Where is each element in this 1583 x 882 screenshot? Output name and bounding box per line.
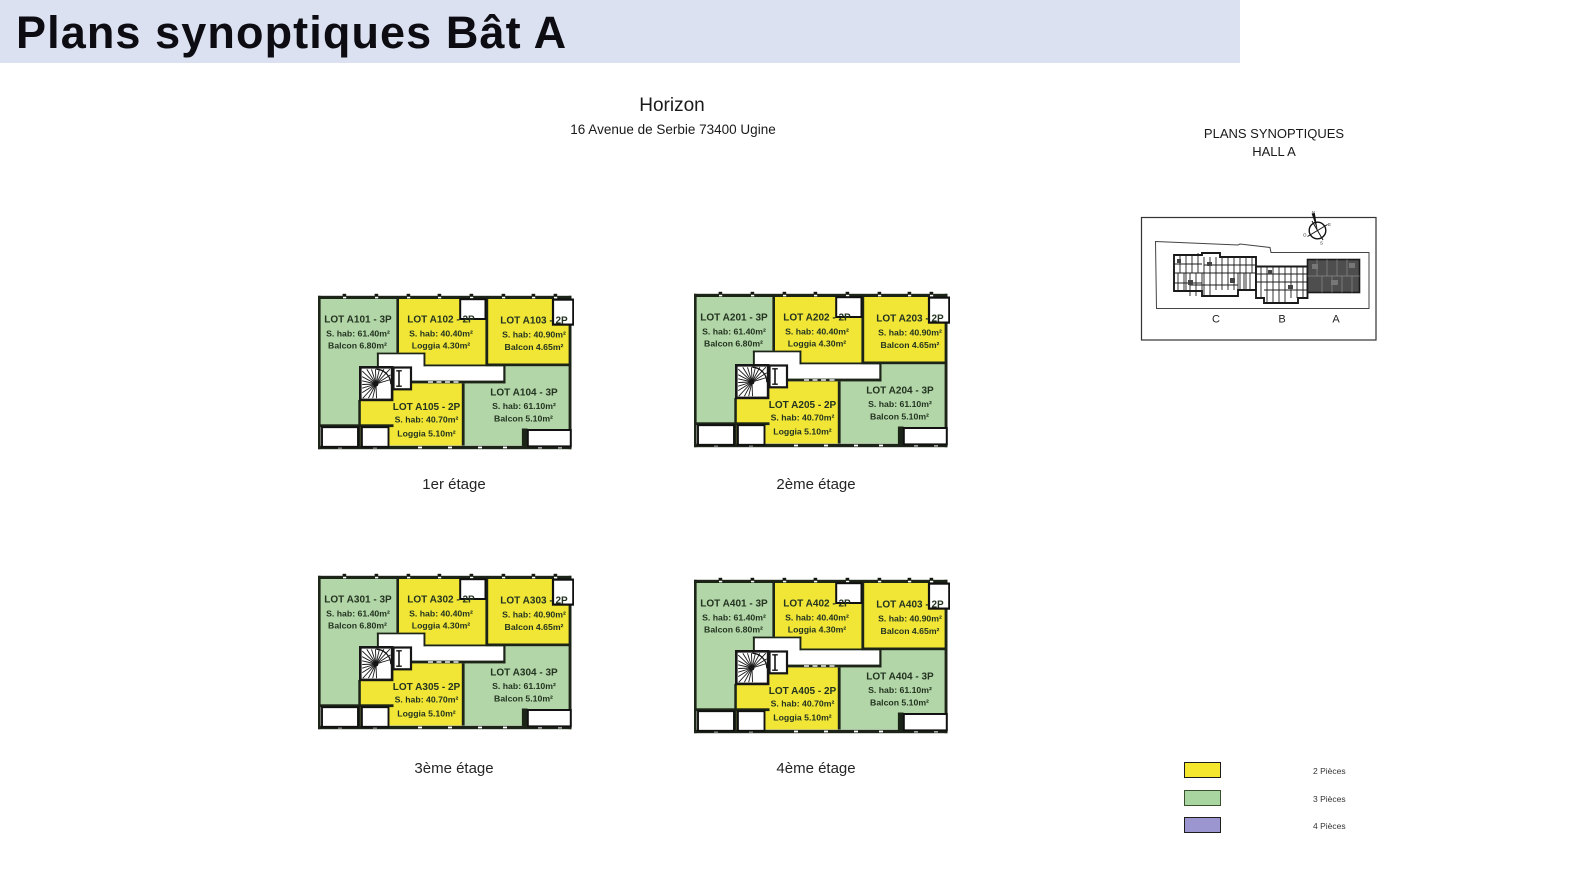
svg-text:LOT A303 - 2P: LOT A303 - 2P	[500, 596, 568, 607]
svg-text:Balcon 4.65m²: Balcon 4.65m²	[505, 622, 564, 632]
svg-text:LOT A201 - 3P: LOT A201 - 3P	[700, 313, 768, 324]
svg-text:S. hab: 40.70m²: S. hab: 40.70m²	[395, 695, 459, 705]
svg-text:S. hab: 61.10m²: S. hab: 61.10m²	[868, 399, 932, 409]
svg-text:Loggia 5.10m²: Loggia 5.10m²	[773, 426, 832, 436]
svg-text:LOT A105 - 2P: LOT A105 - 2P	[393, 402, 461, 413]
svg-text:Balcon 4.65m²: Balcon 4.65m²	[881, 626, 940, 636]
svg-text:Balcon 6.80m²: Balcon 6.80m²	[328, 621, 387, 631]
svg-text:Loggia 4.30m²: Loggia 4.30m²	[788, 339, 847, 349]
svg-text:LOT A305 - 2P: LOT A305 - 2P	[393, 682, 461, 693]
svg-text:Loggia 4.30m²: Loggia 4.30m²	[412, 341, 471, 351]
svg-text:Balcon 5.10m²: Balcon 5.10m²	[870, 698, 929, 708]
svg-text:LOT A203 - 2P: LOT A203 - 2P	[876, 314, 944, 325]
svg-text:Loggia 5.10m²: Loggia 5.10m²	[397, 708, 456, 718]
svg-text:S. hab: 40.70m²: S. hab: 40.70m²	[771, 413, 835, 423]
svg-text:S. hab: 40.40m²: S. hab: 40.40m²	[409, 328, 473, 338]
svg-text:E: E	[1328, 222, 1331, 227]
svg-text:Balcon 4.65m²: Balcon 4.65m²	[505, 342, 564, 352]
svg-text:S. hab: 61.40m²: S. hab: 61.40m²	[702, 326, 766, 336]
svg-text:LOT A205 - 2P: LOT A205 - 2P	[769, 400, 837, 411]
svg-text:C: C	[1212, 314, 1220, 326]
svg-text:LOT A102 - 2P: LOT A102 - 2P	[407, 315, 475, 326]
svg-text:LOT A401 - 3P: LOT A401 - 3P	[700, 599, 768, 610]
svg-text:S. hab: 61.10m²: S. hab: 61.10m²	[492, 681, 556, 691]
svg-text:S: S	[1320, 241, 1323, 246]
svg-text:Balcon 6.80m²: Balcon 6.80m²	[328, 341, 387, 351]
svg-text:LOT A302 - 2P: LOT A302 - 2P	[407, 595, 475, 606]
svg-text:S. hab: 40.90m²: S. hab: 40.90m²	[502, 609, 566, 619]
svg-text:Loggia 5.10m²: Loggia 5.10m²	[397, 428, 456, 438]
svg-text:LOT A204 - 3P: LOT A204 - 3P	[866, 386, 934, 397]
svg-text:LOT A402 - 2P: LOT A402 - 2P	[783, 599, 851, 610]
svg-text:LOT A405 - 2P: LOT A405 - 2P	[769, 686, 837, 697]
svg-text:B: B	[1278, 314, 1285, 326]
svg-text:LOT A301 - 3P: LOT A301 - 3P	[324, 595, 392, 606]
svg-text:S. hab: 40.90m²: S. hab: 40.90m²	[878, 327, 942, 337]
svg-text:S. hab: 61.40m²: S. hab: 61.40m²	[326, 608, 390, 618]
svg-text:Balcon 5.10m²: Balcon 5.10m²	[870, 412, 929, 422]
svg-text:Balcon 5.10m²: Balcon 5.10m²	[494, 694, 553, 704]
svg-text:LOT A403 - 2P: LOT A403 - 2P	[876, 600, 944, 611]
svg-text:A: A	[1332, 314, 1340, 326]
svg-text:S. hab: 40.70m²: S. hab: 40.70m²	[771, 699, 835, 709]
svg-text:Balcon 6.80m²: Balcon 6.80m²	[704, 625, 763, 635]
svg-text:Balcon 4.65m²: Balcon 4.65m²	[881, 340, 940, 350]
svg-text:S. hab: 61.40m²: S. hab: 61.40m²	[326, 328, 390, 338]
svg-text:S. hab: 40.40m²: S. hab: 40.40m²	[785, 326, 849, 336]
svg-text:O: O	[1303, 233, 1307, 238]
svg-text:Loggia 4.30m²: Loggia 4.30m²	[412, 621, 471, 631]
svg-text:Balcon 5.10m²: Balcon 5.10m²	[494, 414, 553, 424]
svg-text:Loggia 4.30m²: Loggia 4.30m²	[788, 625, 847, 635]
svg-text:LOT A202 - 2P: LOT A202 - 2P	[783, 313, 851, 324]
svg-text:LOT A101 - 3P: LOT A101 - 3P	[324, 315, 392, 326]
svg-text:S. hab: 40.90m²: S. hab: 40.90m²	[878, 613, 942, 623]
svg-text:N: N	[1312, 210, 1315, 215]
svg-text:S. hab: 61.10m²: S. hab: 61.10m²	[868, 685, 932, 695]
svg-text:S. hab: 61.40m²: S. hab: 61.40m²	[702, 612, 766, 622]
svg-text:LOT A304 - 3P: LOT A304 - 3P	[490, 668, 558, 679]
svg-text:LOT A103 - 2P: LOT A103 - 2P	[500, 316, 568, 327]
svg-text:S. hab: 61.10m²: S. hab: 61.10m²	[492, 401, 556, 411]
svg-text:S. hab: 40.70m²: S. hab: 40.70m²	[395, 415, 459, 425]
svg-text:LOT A404 - 3P: LOT A404 - 3P	[866, 672, 934, 683]
svg-text:S. hab: 40.90m²: S. hab: 40.90m²	[502, 329, 566, 339]
svg-text:LOT A104 - 3P: LOT A104 - 3P	[490, 388, 558, 399]
svg-text:Loggia 5.10m²: Loggia 5.10m²	[773, 712, 832, 722]
svg-text:S. hab: 40.40m²: S. hab: 40.40m²	[785, 612, 849, 622]
svg-text:Balcon 6.80m²: Balcon 6.80m²	[704, 339, 763, 349]
svg-text:S. hab: 40.40m²: S. hab: 40.40m²	[409, 608, 473, 618]
